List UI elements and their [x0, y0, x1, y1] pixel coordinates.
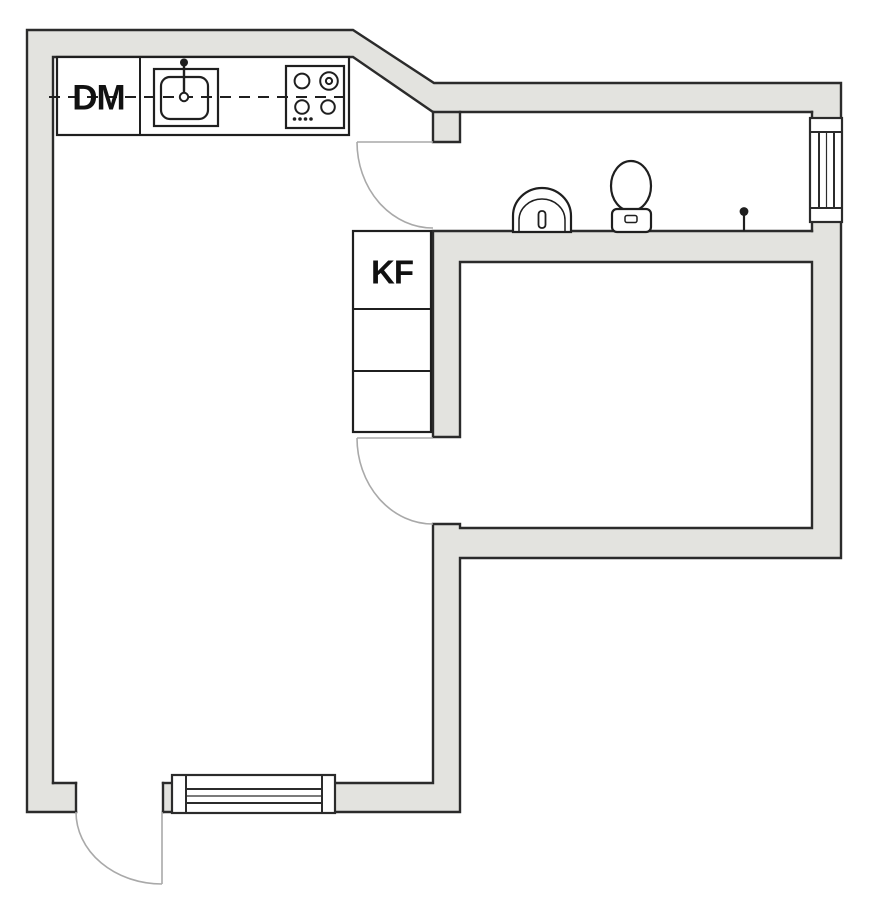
wall-top-left [27, 30, 353, 57]
fridge-freezer-label: KF [371, 254, 413, 291]
wall-living-right [433, 524, 460, 812]
wall-bathroom-stub [433, 112, 460, 142]
bathroom-door [357, 142, 433, 228]
kitchen-counter: DM [49, 57, 349, 135]
valve-dot [740, 207, 749, 216]
walls [27, 30, 841, 812]
entrance-door [76, 812, 162, 884]
faucet-dot [180, 59, 188, 67]
wall-diagonal [353, 30, 434, 112]
wall-bathroom-floor [460, 231, 812, 262]
bathroom-fixtures [513, 161, 748, 232]
door-swing-arc [76, 812, 162, 884]
window-frame [172, 775, 335, 813]
door-swing-arc [357, 438, 433, 524]
bedroom-door [357, 438, 433, 524]
bathroom-window-icon [810, 118, 842, 222]
stove-knob-dot [298, 117, 302, 121]
floor-plan-drawing: DM KF [0, 0, 873, 917]
wall-bottom-stub [163, 783, 172, 812]
burner [321, 100, 335, 114]
wall-bottom-mid [335, 783, 460, 812]
wall-bottom-left [27, 783, 76, 812]
wall-left [27, 30, 53, 812]
wall-kf [433, 230, 460, 437]
stove-knob-dot [304, 117, 308, 121]
wall-bedroom-bottom [460, 528, 841, 558]
dishwasher-label: DM [72, 79, 124, 118]
burner [295, 74, 310, 89]
floor-plan: DM KF [0, 0, 873, 917]
stove-knob-dot [293, 117, 297, 121]
wall-top-right [434, 83, 841, 112]
toilet-button [625, 216, 637, 223]
living-room-window-icon [172, 775, 335, 813]
burner-inner [326, 78, 332, 84]
toilet-icon [611, 161, 651, 211]
door-swing-arc [357, 142, 433, 228]
sink-drain [180, 93, 188, 101]
burner [295, 100, 309, 114]
stove-knob-dot [309, 117, 313, 121]
basin-tap [539, 211, 546, 228]
fridge-cabinet: KF [353, 231, 431, 432]
